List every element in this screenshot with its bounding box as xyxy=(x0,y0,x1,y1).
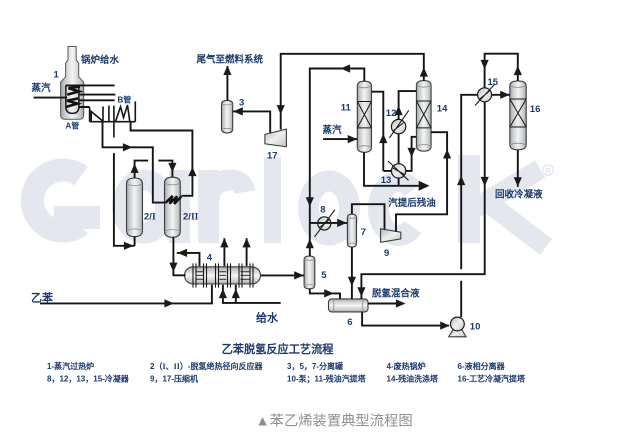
svg-text:14-残油洗涤塔: 14-残油洗涤塔 xyxy=(387,373,440,383)
svg-text:▲苯乙烯装置典型流程图: ▲苯乙烯装置典型流程图 xyxy=(256,413,413,430)
svg-text:A管: A管 xyxy=(66,120,80,130)
svg-text:R: R xyxy=(545,166,551,175)
svg-text:乙苯脱氢反应工艺流程: 乙苯脱氢反应工艺流程 xyxy=(222,342,334,356)
svg-text:13: 13 xyxy=(381,175,392,186)
svg-text:1-蒸汽过热炉: 1-蒸汽过热炉 xyxy=(47,361,94,371)
svg-text:B管: B管 xyxy=(118,95,132,105)
svg-text:1: 1 xyxy=(54,70,60,81)
svg-text:4: 4 xyxy=(207,253,213,264)
svg-text:4-废热锅炉: 4-废热锅炉 xyxy=(387,361,426,371)
svg-text:锅炉给水: 锅炉给水 xyxy=(81,54,120,66)
svg-text:7: 7 xyxy=(361,227,366,238)
svg-text:2/II: 2/II xyxy=(183,212,199,223)
svg-text:汽提后残油: 汽提后残油 xyxy=(388,197,436,209)
svg-text:脱氢混合液: 脱氢混合液 xyxy=(372,288,420,300)
svg-text:给水: 给水 xyxy=(256,311,279,325)
svg-text:10: 10 xyxy=(470,322,481,333)
svg-text:尾气至燃料系统: 尾气至燃料系统 xyxy=(196,54,264,66)
svg-text:9: 9 xyxy=(384,248,389,259)
svg-text:2/I: 2/I xyxy=(144,212,156,223)
svg-text:12: 12 xyxy=(386,108,397,119)
svg-text:16-工艺冷凝汽提塔: 16-工艺冷凝汽提塔 xyxy=(458,373,527,383)
svg-text:9，17-压缩机: 9，17-压缩机 xyxy=(150,373,198,383)
svg-text:10-泵；11-残油汽提塔: 10-泵；11-残油汽提塔 xyxy=(287,373,367,384)
svg-text:6: 6 xyxy=(347,317,352,328)
svg-text:2（I、II）-脱氢绝热径向反应器: 2（I、II）-脱氢绝热径向反应器 xyxy=(150,361,263,371)
svg-text:蒸汽: 蒸汽 xyxy=(323,124,343,136)
svg-text:8: 8 xyxy=(320,204,325,215)
svg-text:回收冷凝液: 回收冷凝液 xyxy=(495,188,543,200)
svg-text:11: 11 xyxy=(341,103,352,114)
svg-text:8，12，13，15-冷凝器: 8，12，13，15-冷凝器 xyxy=(47,373,130,383)
svg-text:乙苯: 乙苯 xyxy=(31,291,54,305)
svg-text:3: 3 xyxy=(239,98,244,109)
svg-text:6-液相分离器: 6-液相分离器 xyxy=(458,361,506,371)
svg-text:16: 16 xyxy=(530,104,541,115)
svg-text:15: 15 xyxy=(488,77,499,88)
svg-text:蒸汽: 蒸汽 xyxy=(32,82,52,94)
svg-text:17: 17 xyxy=(267,151,278,162)
svg-text:5: 5 xyxy=(321,270,327,281)
svg-text:14: 14 xyxy=(437,104,448,115)
svg-text:3，5，7-分离罐: 3，5，7-分离罐 xyxy=(287,361,343,371)
